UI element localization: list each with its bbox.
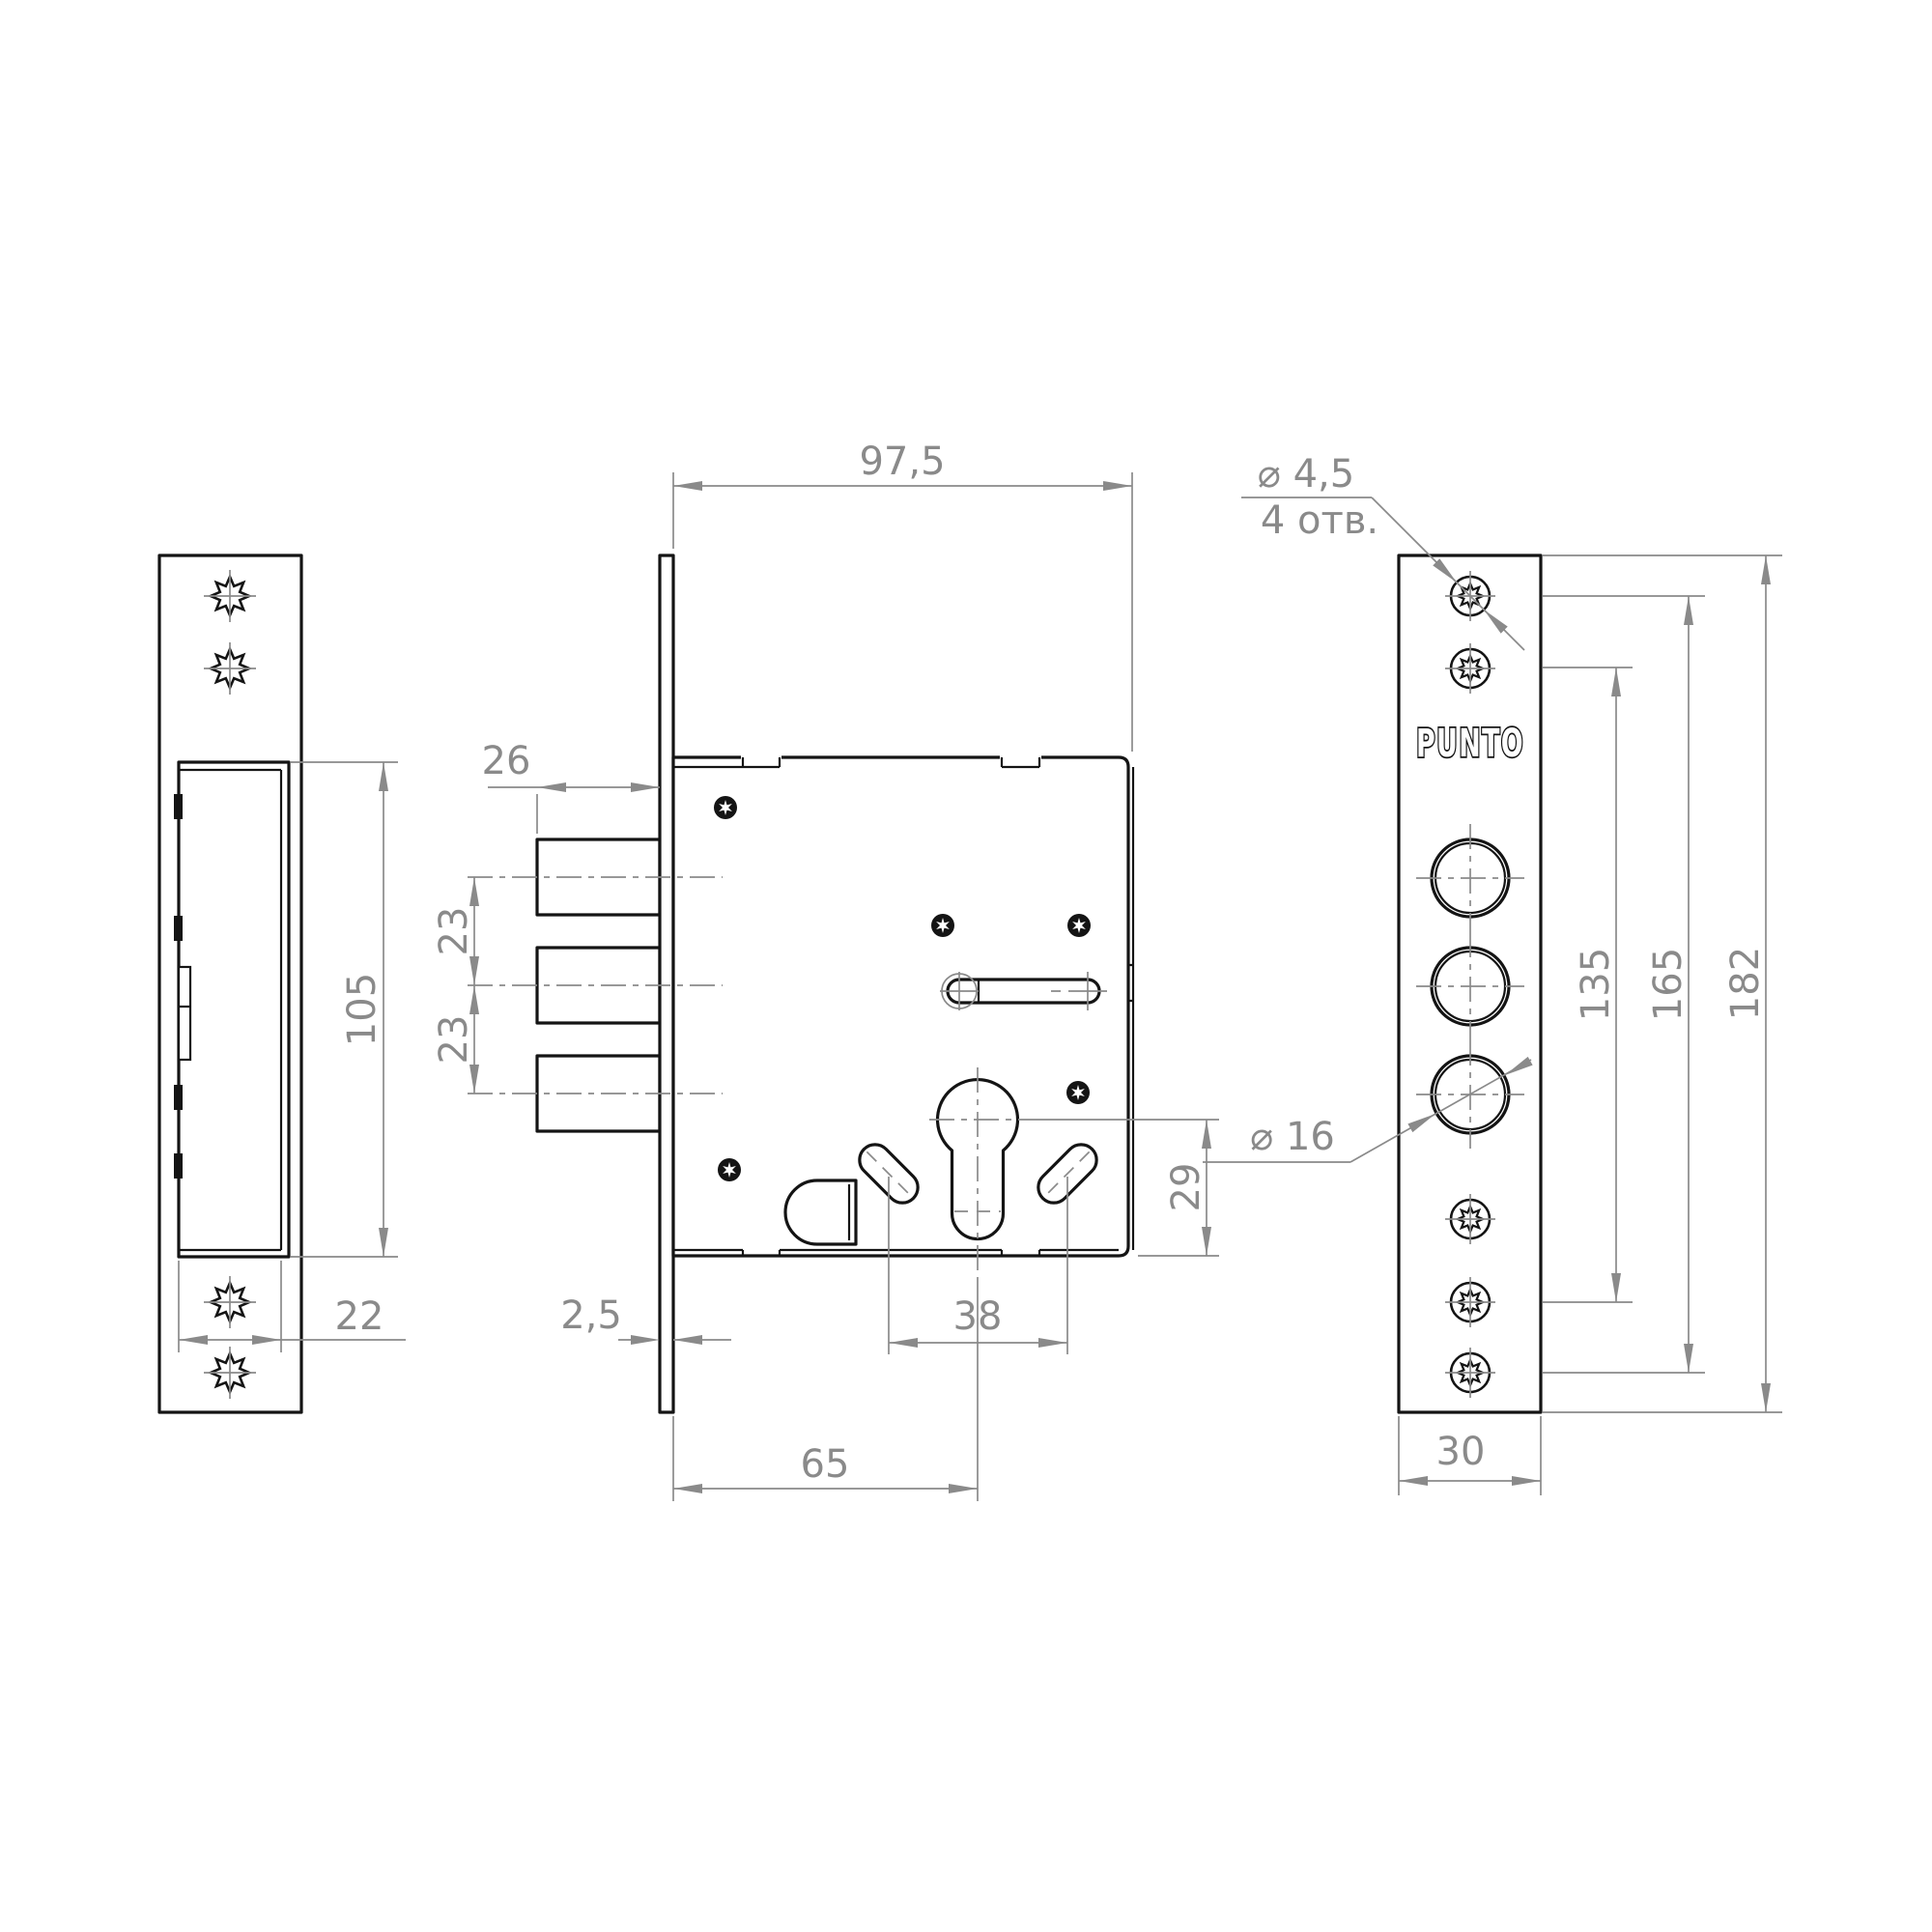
dimension-screws-span-outer: 165: [1543, 596, 1705, 1373]
dimension-cylinder-to-bottom: 29: [1138, 1120, 1219, 1256]
dimension-faceplate-thickness: 2,5: [560, 1293, 731, 1345]
dim-label: 26: [482, 739, 531, 783]
lock-case-side-view: 97,5 26 23 23 2,5: [432, 440, 1219, 1501]
dimension-backset: 65: [673, 1416, 978, 1501]
dim-label: 105: [340, 973, 384, 1046]
strike-plate-rear-view: 105 22: [159, 555, 406, 1412]
case-screw-icon: [714, 796, 737, 819]
deadbolt-pin: [537, 948, 660, 1023]
faceplate-edge: [660, 555, 673, 1412]
dim-label: 135: [1574, 948, 1618, 1021]
callout-label: 4 отв.: [1261, 498, 1378, 543]
dim-label: 182: [1723, 947, 1768, 1020]
case-screw-icon: [1067, 914, 1091, 937]
dim-label: 23: [432, 907, 476, 956]
dim-label: 29: [1164, 1163, 1208, 1212]
deadbolt-pin: [537, 839, 660, 915]
latch-notch-icon: [174, 1153, 183, 1179]
case-screw-icon: [931, 914, 954, 937]
dimension-faceplate-width: 30: [1399, 1416, 1541, 1495]
lock-technical-drawing: 105 22: [0, 0, 1932, 1932]
guide-rail: [179, 967, 190, 1060]
dimension-body-depth: 97,5: [673, 440, 1132, 752]
dim-label: 22: [335, 1294, 384, 1339]
latch-notch-icon: [174, 794, 183, 819]
case-screw-icon: [1066, 1081, 1090, 1104]
brand-logo: PUNTO: [1416, 722, 1524, 766]
callout-label: ⌀ 16: [1250, 1115, 1335, 1159]
dim-label: 38: [953, 1294, 1003, 1339]
strike-box: [174, 762, 289, 1257]
callout-label: ⌀ 4,5: [1258, 452, 1354, 497]
drawing-sheet: 105 22: [0, 0, 1932, 1932]
case-screw-icon: [718, 1158, 741, 1181]
dimension-screws-span-inner: 135: [1543, 668, 1633, 1302]
latch-notch-icon: [174, 1085, 183, 1110]
dim-label: 65: [801, 1442, 850, 1487]
dim-label: 165: [1646, 948, 1690, 1021]
latch-notch-icon: [174, 916, 183, 941]
deadbolt-pin: [537, 1056, 660, 1131]
dim-label: 97,5: [859, 440, 945, 484]
faceplate-front-view: PUNTO ⌀ 4,5 4 отв. ⌀ 16 135: [1203, 452, 1782, 1495]
dimension-bolt-throw: 26: [482, 739, 660, 834]
dim-label: 23: [432, 1015, 476, 1065]
dim-label: 2,5: [560, 1293, 622, 1338]
dim-label: 30: [1436, 1430, 1486, 1474]
d-shaped-opening: [785, 1180, 856, 1244]
dimension-strike-cutout-height: 105: [291, 762, 398, 1257]
